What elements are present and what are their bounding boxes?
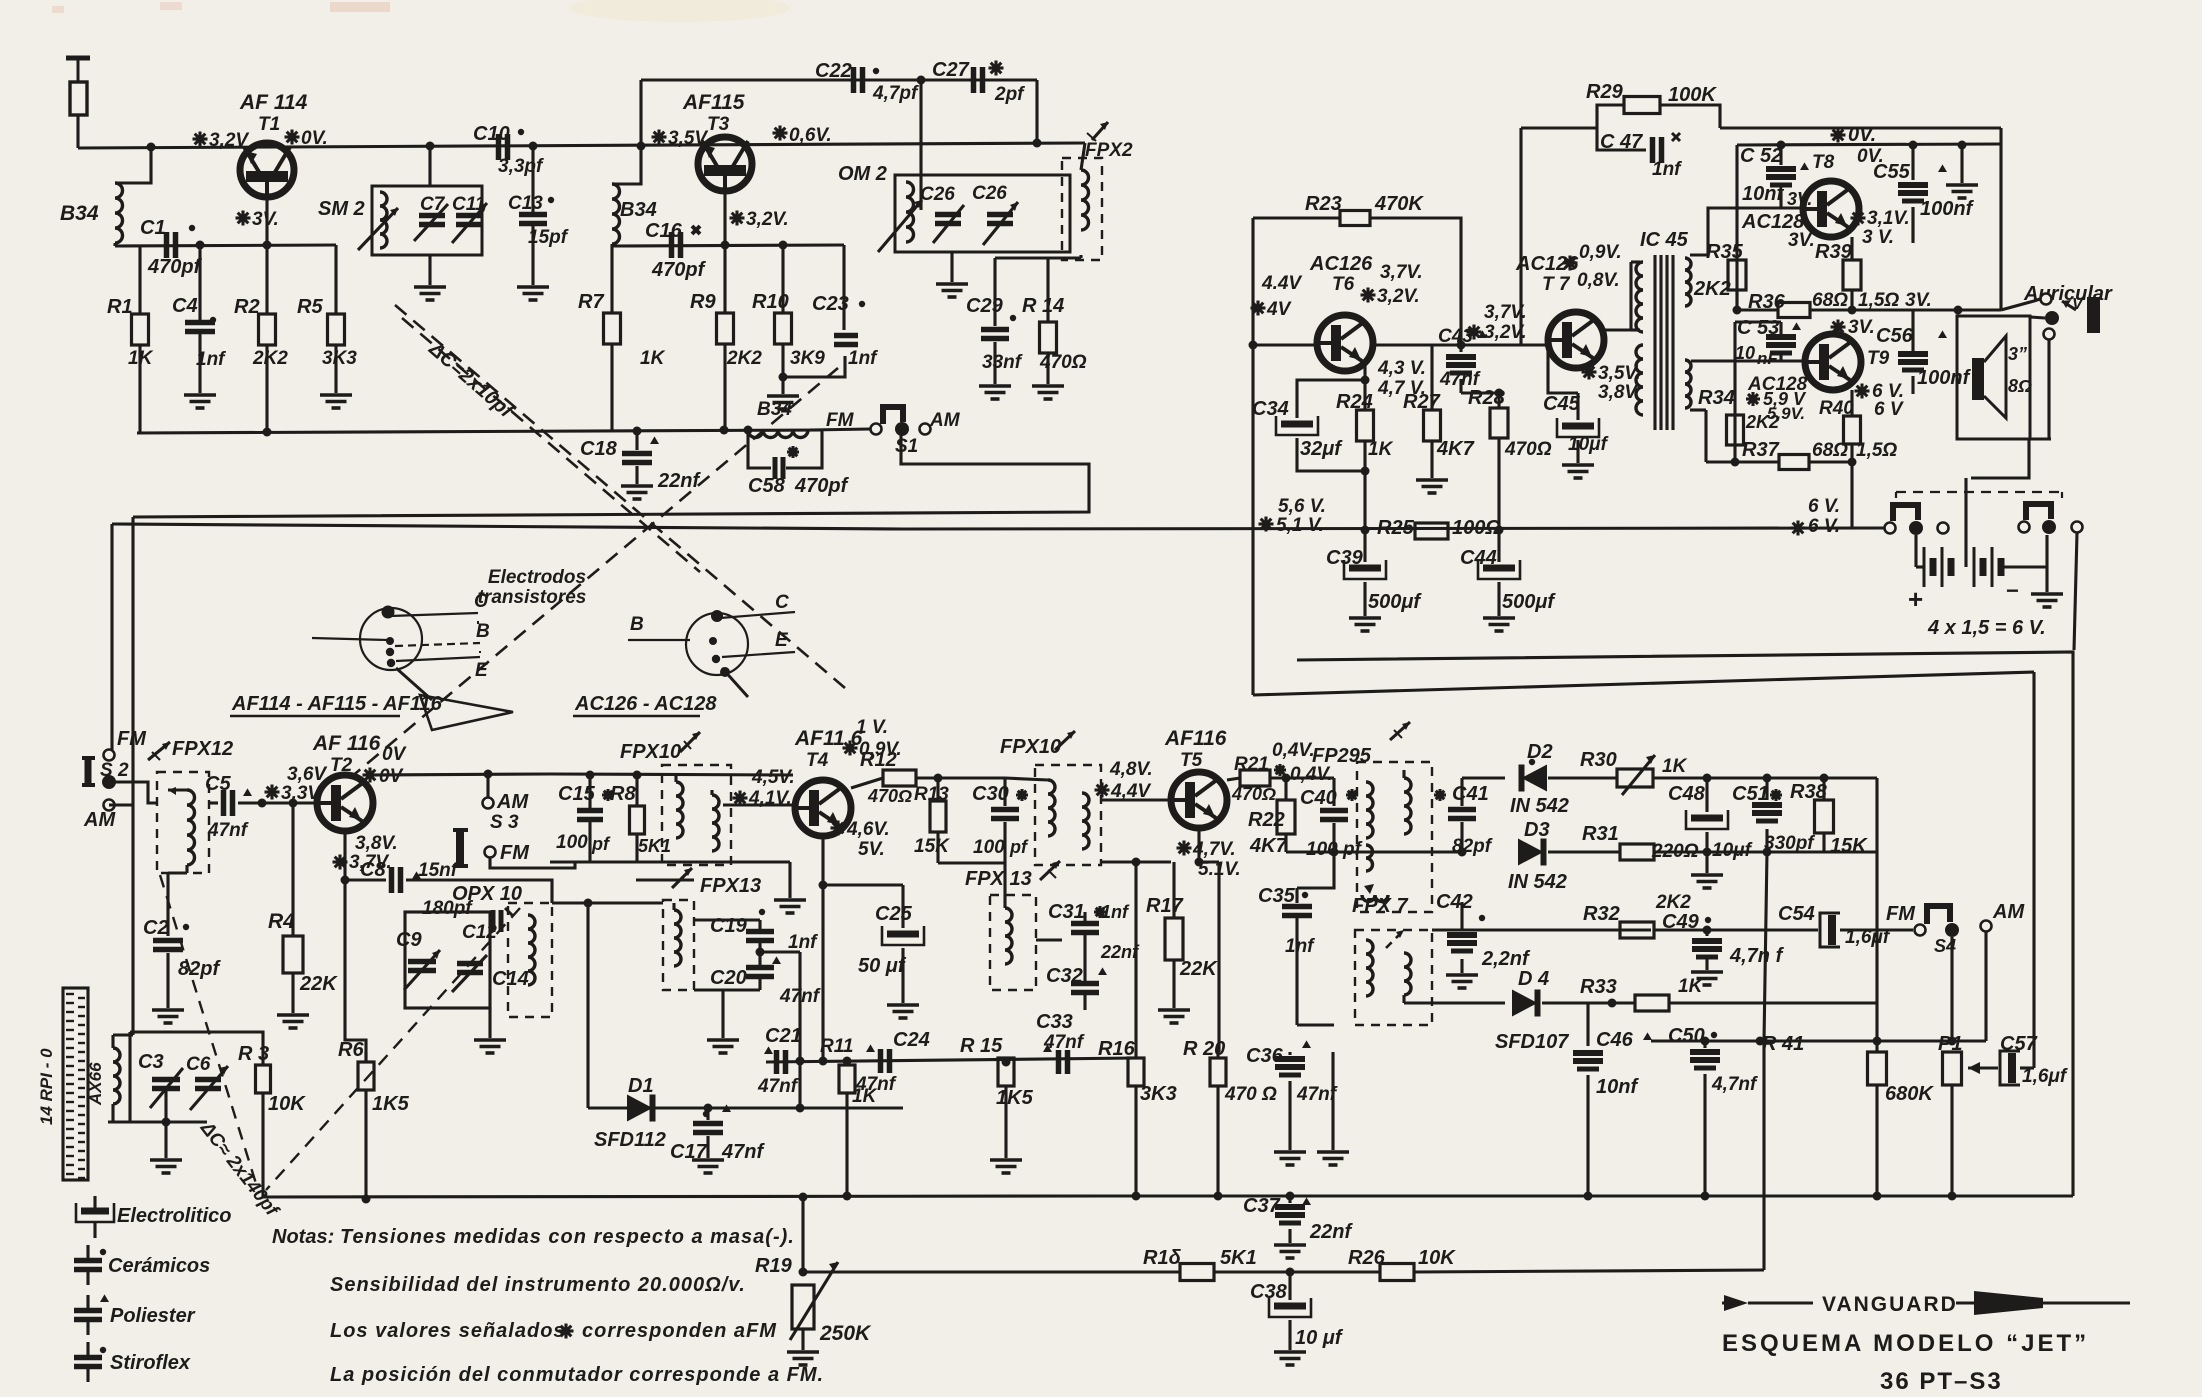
svg-text:1K5: 1K5 xyxy=(372,1093,410,1115)
svg-text:C5: C5 xyxy=(205,773,231,795)
svg-text:FPX10: FPX10 xyxy=(1000,736,1061,758)
svg-text:T1: T1 xyxy=(258,114,280,135)
svg-text:C45: C45 xyxy=(1543,393,1581,415)
svg-text:R19: R19 xyxy=(755,1255,793,1277)
svg-text:100nf: 100nf xyxy=(1917,367,1972,389)
svg-text:T9: T9 xyxy=(1867,348,1890,369)
svg-text:R1δ: R1δ xyxy=(1143,1247,1182,1269)
svg-text:2K2: 2K2 xyxy=(726,348,762,369)
svg-text:FPX12: FPX12 xyxy=(172,738,233,760)
svg-text:C31: C31 xyxy=(1048,901,1085,923)
svg-text:AF 114: AF 114 xyxy=(239,91,308,114)
svg-text:330pf: 330pf xyxy=(1764,833,1815,854)
svg-text:R25: R25 xyxy=(1377,517,1415,539)
svg-text:2,2nf: 2,2nf xyxy=(1481,948,1531,970)
svg-text:3K3: 3K3 xyxy=(322,348,357,369)
svg-text:180pf: 180pf xyxy=(422,898,473,919)
svg-text:C1: C1 xyxy=(140,217,166,239)
svg-text:D 4: D 4 xyxy=(1518,968,1549,990)
svg-text:R 15: R 15 xyxy=(960,1035,1003,1057)
svg-text:R37: R37 xyxy=(1742,439,1780,461)
svg-text:4.4V: 4.4V xyxy=(1261,273,1302,294)
svg-text:C12: C12 xyxy=(462,922,497,943)
svg-text:C7: C7 xyxy=(420,194,446,215)
svg-text:AF116: AF116 xyxy=(1164,727,1227,750)
svg-text:0V.: 0V. xyxy=(1848,124,1876,146)
svg-text:4,1V.: 4,1V. xyxy=(748,788,792,809)
svg-text:C: C xyxy=(775,592,789,613)
svg-text:T8: T8 xyxy=(1812,152,1835,173)
svg-text:pf: pf xyxy=(591,834,611,854)
svg-text:1nf: 1nf xyxy=(1101,902,1130,922)
svg-text:C10: C10 xyxy=(473,123,510,145)
svg-text:47nf: 47nf xyxy=(1043,1032,1085,1053)
svg-text:15pf: 15pf xyxy=(528,227,569,248)
svg-text:3,2V.: 3,2V. xyxy=(746,209,789,230)
svg-text:10K: 10K xyxy=(268,1093,306,1115)
svg-text:3V.: 3V. xyxy=(1905,290,1932,311)
svg-text:82pf: 82pf xyxy=(178,958,221,980)
svg-text:3V.: 3V. xyxy=(1848,317,1875,338)
svg-text:0,9V.: 0,9V. xyxy=(1579,242,1622,263)
svg-text:1K: 1K xyxy=(128,348,154,369)
svg-text:1K5: 1K5 xyxy=(996,1087,1034,1109)
svg-text:C19: C19 xyxy=(710,915,748,937)
svg-text:AC126 - AC128: AC126 - AC128 xyxy=(574,693,717,715)
svg-text:0V.: 0V. xyxy=(301,128,328,149)
svg-text:500μf: 500μf xyxy=(1502,591,1556,613)
svg-text:3V.: 3V. xyxy=(1788,230,1815,251)
svg-text:4,7nf: 4,7nf xyxy=(1711,1074,1758,1095)
svg-text:10nf: 10nf xyxy=(1596,1076,1639,1098)
svg-text:C14: C14 xyxy=(492,968,529,990)
svg-text:transistores: transistores xyxy=(478,587,587,608)
svg-text:SFD112: SFD112 xyxy=(594,1129,666,1151)
svg-text:R 3: R 3 xyxy=(238,1043,269,1065)
svg-text:0,6V.: 0,6V. xyxy=(789,125,832,146)
svg-text:C35: C35 xyxy=(1258,885,1296,907)
svg-text:470pf: 470pf xyxy=(651,259,707,281)
svg-text:3V.: 3V. xyxy=(252,209,279,230)
svg-text:C 52: C 52 xyxy=(1740,145,1782,167)
svg-text:C13: C13 xyxy=(508,193,543,214)
svg-text:FM: FM xyxy=(1886,903,1916,925)
svg-text:Los valores señalados: Los valores señalados xyxy=(330,1320,566,1342)
svg-text:68Ω: 68Ω xyxy=(1812,440,1848,461)
svg-text:B34: B34 xyxy=(620,199,657,221)
svg-text:T 7: T 7 xyxy=(1542,274,1571,295)
svg-text:T5: T5 xyxy=(1180,750,1203,771)
svg-text:C30: C30 xyxy=(972,783,1009,805)
svg-text:6 V.: 6 V. xyxy=(1808,516,1840,537)
svg-text:50 μf: 50 μf xyxy=(858,955,907,977)
svg-text:R13: R13 xyxy=(914,784,949,805)
svg-text:6 V: 6 V xyxy=(1874,399,1904,420)
svg-text:4,7pf: 4,7pf xyxy=(872,83,919,104)
svg-text:22nf: 22nf xyxy=(657,470,701,492)
svg-text:AM: AM xyxy=(83,809,116,831)
svg-text:C3: C3 xyxy=(138,1051,164,1073)
svg-text:AX66: AX66 xyxy=(86,1062,105,1106)
svg-text:470 Ω: 470 Ω xyxy=(1224,1084,1277,1105)
svg-text:C8: C8 xyxy=(360,859,386,881)
svg-text:5,6 V.: 5,6 V. xyxy=(1278,496,1326,517)
svg-text:R 41: R 41 xyxy=(1762,1033,1804,1055)
svg-text:3,1V.: 3,1V. xyxy=(1867,208,1910,229)
svg-text:1nf: 1nf xyxy=(848,348,878,369)
svg-text:4K7: 4K7 xyxy=(1436,438,1475,460)
svg-text:C37: C37 xyxy=(1243,1195,1281,1217)
svg-text:22K: 22K xyxy=(1179,958,1218,980)
svg-text:3,8V.: 3,8V. xyxy=(355,833,398,854)
svg-text:470Ω: 470Ω xyxy=(867,786,912,806)
svg-text:C2: C2 xyxy=(143,917,169,939)
svg-text:T6: T6 xyxy=(1332,274,1355,295)
svg-text:−: − xyxy=(2006,578,2019,603)
svg-text:2K2: 2K2 xyxy=(1745,412,1779,432)
svg-text:470Ω: 470Ω xyxy=(1231,784,1276,804)
svg-text:3K9: 3K9 xyxy=(790,348,825,369)
svg-text:FM: FM xyxy=(826,410,855,431)
svg-text:C: C xyxy=(474,591,488,612)
svg-text:3K3: 3K3 xyxy=(1140,1083,1177,1105)
svg-text:FM: FM xyxy=(117,728,147,750)
svg-text:R31: R31 xyxy=(1582,823,1619,845)
svg-text:3,2V.: 3,2V. xyxy=(1377,286,1420,307)
svg-text:C49: C49 xyxy=(1662,911,1700,933)
svg-text:AC126: AC126 xyxy=(1309,253,1373,275)
svg-text:1,5Ω: 1,5Ω xyxy=(1858,290,1899,311)
svg-text:C26: C26 xyxy=(972,183,1007,204)
svg-text:4,5V.: 4,5V. xyxy=(751,767,795,788)
svg-text:5V.: 5V. xyxy=(858,839,885,860)
svg-text:AF 116: AF 116 xyxy=(312,732,381,755)
svg-text:0,4V.: 0,4V. xyxy=(1272,740,1315,761)
svg-text:4 x 1,5 = 6 V.: 4 x 1,5 = 6 V. xyxy=(1927,617,2046,639)
svg-text:100K: 100K xyxy=(1668,84,1717,106)
svg-text:VANGUARD: VANGUARD xyxy=(1822,1293,1958,1316)
svg-text:3,5V.: 3,5V. xyxy=(1598,363,1641,384)
svg-text:R5: R5 xyxy=(297,296,323,318)
svg-text:FPX13: FPX13 xyxy=(700,875,761,897)
svg-text:R32: R32 xyxy=(1583,903,1620,925)
svg-text:68Ω: 68Ω xyxy=(1812,290,1848,311)
svg-text:36 PT–S3: 36 PT–S3 xyxy=(1880,1368,2003,1395)
svg-text:14 RPI - 0: 14 RPI - 0 xyxy=(37,1048,56,1125)
svg-text:1K: 1K xyxy=(1662,756,1688,777)
svg-text:4,7n f: 4,7n f xyxy=(1729,945,1785,967)
svg-text:C20: C20 xyxy=(710,967,747,989)
svg-text:1K: 1K xyxy=(1368,439,1394,460)
svg-text:10nf: 10nf xyxy=(1742,183,1785,205)
svg-text:5K1: 5K1 xyxy=(638,836,671,856)
svg-text:D3: D3 xyxy=(1524,819,1550,841)
svg-text:500μf: 500μf xyxy=(1368,591,1422,613)
svg-text:AM: AM xyxy=(496,791,529,813)
svg-text:22nf: 22nf xyxy=(1309,1221,1353,1243)
svg-text:C54: C54 xyxy=(1778,903,1815,925)
svg-text:C26: C26 xyxy=(920,184,955,205)
svg-text:C11: C11 xyxy=(452,194,485,215)
svg-text:C41: C41 xyxy=(1452,783,1489,805)
svg-text:FPX 13: FPX 13 xyxy=(965,868,1032,890)
svg-text:SFD107: SFD107 xyxy=(1495,1031,1569,1053)
svg-text:C50: C50 xyxy=(1668,1025,1705,1047)
svg-text:82pf: 82pf xyxy=(1452,836,1493,857)
svg-text:0,8V.: 0,8V. xyxy=(1577,270,1620,291)
svg-text:250K: 250K xyxy=(819,1322,872,1345)
svg-text:Cerámicos: Cerámicos xyxy=(108,1255,210,1277)
svg-text:Poliester: Poliester xyxy=(110,1305,196,1327)
svg-text:5K1: 5K1 xyxy=(1220,1247,1257,1269)
svg-text:100Ω: 100Ω xyxy=(1452,517,1501,539)
svg-text:5,1 V.: 5,1 V. xyxy=(1276,515,1324,536)
svg-text:B34: B34 xyxy=(757,399,792,420)
svg-text:R17: R17 xyxy=(1146,895,1184,917)
svg-text:470K: 470K xyxy=(1374,193,1424,215)
svg-text:1 V.: 1 V. xyxy=(856,717,888,738)
svg-text:C21: C21 xyxy=(765,1025,802,1047)
svg-text:C 47: C 47 xyxy=(1600,131,1643,153)
svg-text:C40: C40 xyxy=(1300,787,1337,809)
svg-text:0V: 0V xyxy=(382,744,407,765)
svg-text:R9: R9 xyxy=(690,291,716,313)
svg-text:C34: C34 xyxy=(1252,398,1289,420)
svg-text:Tensiones medidas con respe: Tensiones medidas con respecto a masa(-)… xyxy=(340,1226,795,1248)
svg-text:1nf: 1nf xyxy=(1285,936,1315,957)
svg-text:0V: 0V xyxy=(379,766,404,787)
svg-text:C46: C46 xyxy=(1596,1029,1634,1051)
svg-text:4K7: 4K7 xyxy=(1249,835,1288,857)
svg-text:4V: 4V xyxy=(1266,299,1292,320)
svg-text:R29: R29 xyxy=(1586,81,1624,103)
svg-text:C25: C25 xyxy=(875,903,913,925)
svg-text:8Ω: 8Ω xyxy=(2008,376,2032,396)
svg-text:47nf: 47nf xyxy=(757,1076,799,1097)
svg-text:pf: pf xyxy=(1009,837,1029,857)
svg-text:Stiroflex: Stiroflex xyxy=(110,1352,191,1374)
svg-text:C27: C27 xyxy=(932,59,970,81)
svg-text:10 μf: 10 μf xyxy=(1295,1327,1344,1349)
svg-text:4,3 V.: 4,3 V. xyxy=(1377,358,1426,379)
svg-text:R23: R23 xyxy=(1305,193,1342,215)
svg-text:AM: AM xyxy=(1992,901,2025,923)
svg-text:ESQUEMA MODELO “JET”: ESQUEMA MODELO “JET” xyxy=(1722,1330,2089,1357)
svg-text:47nf: 47nf xyxy=(855,1074,897,1095)
svg-text:C29: C29 xyxy=(966,295,1004,317)
svg-text:100nf: 100nf xyxy=(1920,198,1975,220)
svg-text:C15: C15 xyxy=(558,783,596,805)
svg-text:R6: R6 xyxy=(338,1039,364,1061)
svg-text:3,5V.: 3,5V. xyxy=(668,128,711,149)
svg-text:C9: C9 xyxy=(396,929,422,951)
svg-text:D1: D1 xyxy=(628,1075,654,1097)
svg-text:4,4V: 4,4V xyxy=(1110,781,1151,802)
svg-text:470Ω: 470Ω xyxy=(1504,439,1552,460)
svg-text:T2: T2 xyxy=(330,755,353,776)
svg-text:R10: R10 xyxy=(752,291,789,313)
svg-text:R16: R16 xyxy=(1098,1038,1136,1060)
svg-text:1nf: 1nf xyxy=(788,932,818,953)
svg-text:100: 100 xyxy=(973,837,1005,858)
svg-text:1K: 1K xyxy=(640,348,666,369)
svg-text:22nf: 22nf xyxy=(1100,942,1140,962)
svg-text:47nf: 47nf xyxy=(207,820,249,841)
svg-text:corresponden aFM: corresponden aFM xyxy=(582,1320,777,1342)
svg-text:1,5Ω: 1,5Ω xyxy=(1856,440,1897,461)
svg-text:47nf: 47nf xyxy=(721,1141,765,1163)
svg-text:Electrolitico: Electrolitico xyxy=(117,1205,231,1227)
svg-text:R11: R11 xyxy=(820,1036,853,1057)
svg-text:15nf: 15nf xyxy=(418,860,459,881)
svg-text:R1: R1 xyxy=(107,296,133,318)
svg-text:C56: C56 xyxy=(1876,325,1914,347)
svg-text:15K: 15K xyxy=(914,836,950,857)
svg-text:10K: 10K xyxy=(1418,1247,1456,1269)
svg-text:1nf: 1nf xyxy=(1652,159,1682,180)
svg-text:Electrodos: Electrodos xyxy=(488,567,586,588)
svg-text:3”: 3” xyxy=(2008,344,2027,364)
svg-text:R 14: R 14 xyxy=(1022,295,1064,317)
svg-text:IN 542: IN 542 xyxy=(1510,795,1569,817)
svg-text:nF: nF xyxy=(1757,349,1778,368)
svg-text:2K2: 2K2 xyxy=(1693,278,1731,300)
svg-text:IN 542: IN 542 xyxy=(1508,871,1567,893)
svg-text:OM 2: OM 2 xyxy=(838,163,887,185)
svg-text:C22: C22 xyxy=(815,60,852,82)
svg-text:R12: R12 xyxy=(860,749,897,771)
svg-text:C6: C6 xyxy=(186,1054,211,1075)
svg-text:C43: C43 xyxy=(1438,326,1473,347)
svg-text:B34: B34 xyxy=(60,202,99,225)
svg-text:R4: R4 xyxy=(268,910,295,933)
svg-text:470pf: 470pf xyxy=(794,475,850,497)
svg-text:4,6V.: 4,6V. xyxy=(846,819,890,840)
svg-text:C48: C48 xyxy=(1668,783,1706,805)
svg-text:S1: S1 xyxy=(895,436,918,457)
svg-text:2K2: 2K2 xyxy=(252,348,288,369)
svg-text:6 V.: 6 V. xyxy=(1808,496,1840,517)
svg-text:Sensibilidad del instrumen: Sensibilidad del instrumento 20.000Ω/v. xyxy=(330,1274,746,1296)
svg-text:R8: R8 xyxy=(610,783,636,805)
svg-text:AM: AM xyxy=(929,410,961,431)
svg-text:470Ω: 470Ω xyxy=(1039,352,1087,373)
svg-text:10μf: 10μf xyxy=(1568,434,1609,455)
svg-text:Notas:: Notas: xyxy=(272,1226,334,1248)
svg-text:C18: C18 xyxy=(580,438,618,460)
svg-text:4,8V.: 4,8V. xyxy=(1109,759,1153,780)
svg-text:C55: C55 xyxy=(1873,161,1911,183)
svg-text:La posición del conmutador: La posición del conmutador corresponde a… xyxy=(330,1364,824,1386)
svg-text:3,7V.: 3,7V. xyxy=(1380,262,1423,283)
svg-text:C42: C42 xyxy=(1436,891,1473,913)
svg-text:100: 100 xyxy=(556,832,588,853)
svg-text:2K2: 2K2 xyxy=(1655,892,1691,913)
svg-text:IC 45: IC 45 xyxy=(1640,229,1689,251)
svg-text:R7: R7 xyxy=(578,291,604,313)
svg-text:C23: C23 xyxy=(812,293,849,315)
svg-text:3,6V: 3,6V xyxy=(287,764,327,785)
svg-text:T4: T4 xyxy=(806,750,829,771)
svg-text:B: B xyxy=(630,614,644,635)
svg-text:1nf: 1nf xyxy=(196,349,226,370)
svg-text:FM: FM xyxy=(500,842,530,864)
svg-text:33nf: 33nf xyxy=(982,352,1023,373)
svg-text:680K: 680K xyxy=(1885,1083,1934,1105)
svg-text:R22: R22 xyxy=(1248,809,1285,831)
svg-text:0,4V.: 0,4V. xyxy=(1290,764,1333,785)
svg-text:C33: C33 xyxy=(1036,1011,1073,1033)
svg-text:B: B xyxy=(476,621,490,642)
svg-text:3 V.: 3 V. xyxy=(1862,227,1894,248)
svg-text:470pf: 470pf xyxy=(147,256,203,278)
svg-text:C32: C32 xyxy=(1046,965,1083,987)
svg-text:AF115: AF115 xyxy=(682,91,745,114)
svg-text:R33: R33 xyxy=(1580,976,1617,998)
svg-text:C16: C16 xyxy=(645,220,683,242)
svg-text:C4: C4 xyxy=(172,295,198,317)
svg-text:R30: R30 xyxy=(1580,749,1617,771)
svg-text:SM 2: SM 2 xyxy=(318,198,365,220)
svg-text:AF114 - AF115 - AF116: AF114 - AF115 - AF116 xyxy=(231,693,443,715)
svg-text:C58: C58 xyxy=(748,475,786,497)
svg-text:2pf: 2pf xyxy=(994,84,1025,105)
svg-text:R21: R21 xyxy=(1234,754,1269,775)
svg-text:22K: 22K xyxy=(299,973,338,995)
svg-text:R2: R2 xyxy=(234,296,260,318)
svg-text:V: V xyxy=(2072,296,2084,313)
svg-text:C51: C51 xyxy=(1732,783,1769,805)
svg-text:3,2V: 3,2V xyxy=(209,130,249,151)
svg-text:3,8V: 3,8V xyxy=(1598,382,1638,403)
svg-text:C17: C17 xyxy=(670,1141,708,1163)
svg-text:R34: R34 xyxy=(1698,387,1735,409)
svg-text:FPX 7: FPX 7 xyxy=(1352,895,1408,917)
svg-text:+: + xyxy=(1908,584,1923,614)
svg-text:FPX2: FPX2 xyxy=(1085,140,1133,161)
svg-text:32μf: 32μf xyxy=(1300,438,1343,460)
svg-text:C24: C24 xyxy=(893,1029,930,1051)
svg-text:3,3pf: 3,3pf xyxy=(498,156,544,177)
svg-text:S 3: S 3 xyxy=(490,812,519,833)
svg-text:FPX10: FPX10 xyxy=(620,741,681,763)
svg-text:15K: 15K xyxy=(1830,835,1868,857)
svg-text:10μf: 10μf xyxy=(1712,840,1753,861)
